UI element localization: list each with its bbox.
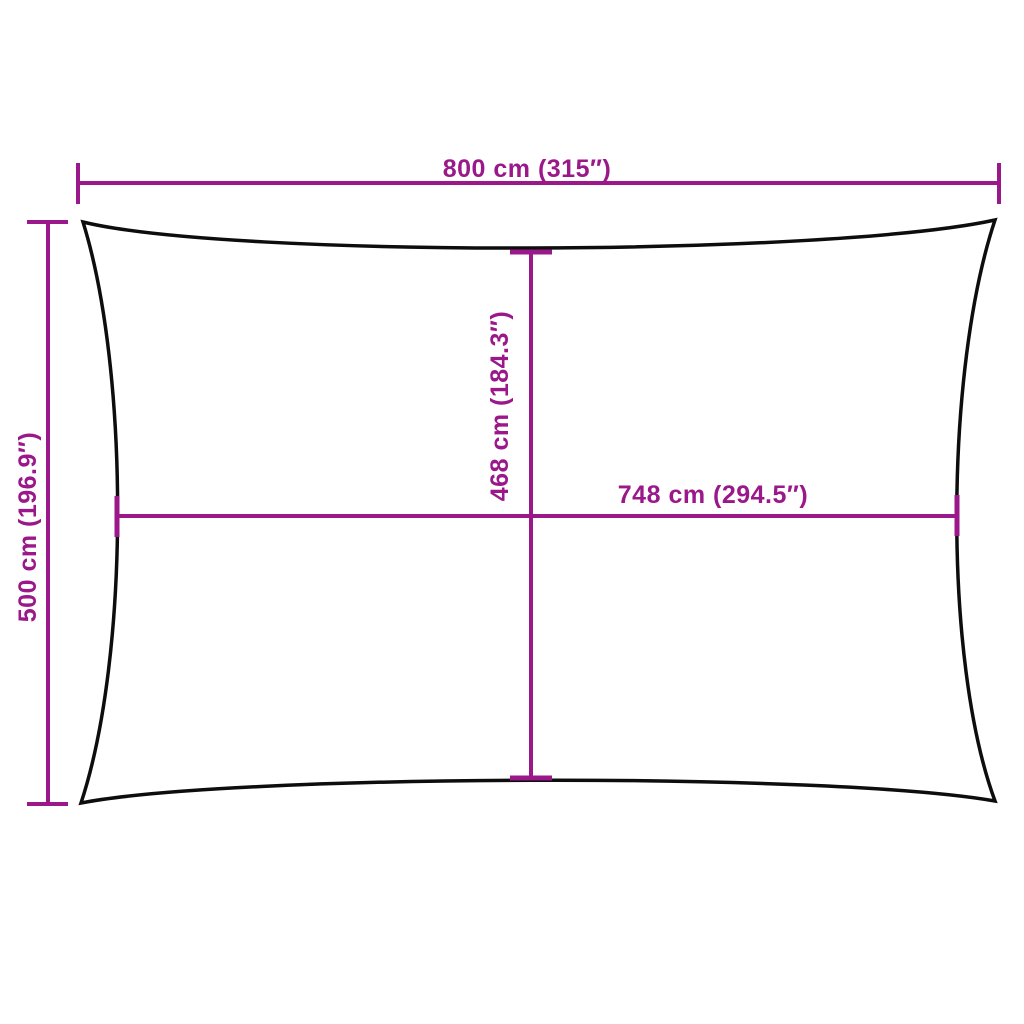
shade-sail-outline	[81, 220, 995, 803]
dimension-label-outer-height: 500 cm (196.9″)	[14, 432, 42, 622]
diagram-canvas: 800 cm (315″) 500 cm (196.9″) 468 cm (18…	[0, 0, 1024, 1024]
dimension-label-outer-width: 800 cm (315″)	[443, 155, 612, 183]
product-dimension-diagram: 800 cm (315″) 500 cm (196.9″) 468 cm (18…	[0, 0, 1024, 1024]
dimension-outer-height: 500 cm (196.9″)	[14, 222, 68, 804]
dimension-outer-width: 800 cm (315″)	[78, 155, 999, 204]
dimension-label-inner-height: 468 cm (184.3″)	[486, 311, 514, 501]
dimension-label-inner-width: 748 cm (294.5″)	[618, 481, 808, 509]
